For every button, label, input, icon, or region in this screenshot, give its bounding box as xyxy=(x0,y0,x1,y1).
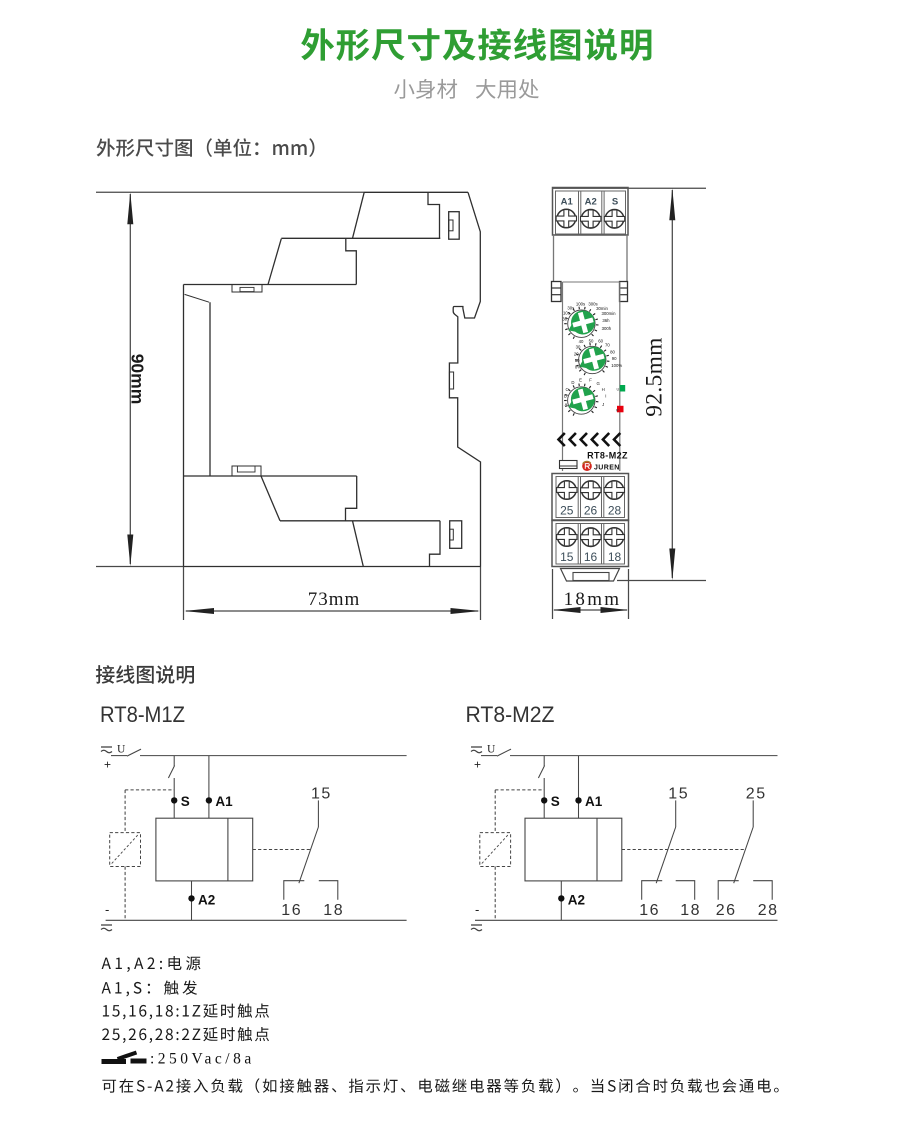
svg-text:50: 50 xyxy=(589,339,594,344)
svg-text:JUREN: JUREN xyxy=(594,464,620,471)
svg-text:C: C xyxy=(565,387,568,392)
svg-text:RT8-M1Z: RT8-M1Z xyxy=(100,702,185,727)
svg-text:A2: A2 xyxy=(585,197,597,208)
svg-text:15: 15 xyxy=(560,550,574,564)
svg-text:26: 26 xyxy=(716,902,737,919)
svg-text:10: 10 xyxy=(575,358,580,363)
svg-text:16: 16 xyxy=(639,902,660,919)
svg-text:300min: 300min xyxy=(601,311,616,316)
svg-text:92.5mm: 92.5mm xyxy=(642,337,668,416)
svg-text:70: 70 xyxy=(605,343,610,348)
svg-text:100%: 100% xyxy=(611,363,622,368)
svg-text:RT8-M2Z: RT8-M2Z xyxy=(587,451,628,461)
svg-text:-: - xyxy=(475,902,479,917)
svg-text:A2: A2 xyxy=(198,893,215,908)
svg-text:30: 30 xyxy=(576,345,581,350)
svg-text:90mm: 90mm xyxy=(128,354,148,405)
svg-text:73mm: 73mm xyxy=(308,589,361,610)
svg-text:S: S xyxy=(612,197,618,208)
svg-text:D: D xyxy=(571,380,574,385)
svg-text:U: U xyxy=(487,744,496,756)
svg-text:36h: 36h xyxy=(602,318,610,323)
svg-text:15: 15 xyxy=(311,786,332,803)
svg-text:3s: 3s xyxy=(562,317,567,322)
svg-text:20: 20 xyxy=(574,352,579,357)
svg-text:26: 26 xyxy=(584,504,598,518)
svg-text:A1: A1 xyxy=(585,794,603,809)
svg-text:40: 40 xyxy=(579,339,584,344)
svg-text:25: 25 xyxy=(746,786,767,803)
svg-text:0%: 0% xyxy=(575,365,581,370)
svg-text:18mm: 18mm xyxy=(564,589,622,610)
svg-text:10s: 10s xyxy=(563,311,570,316)
svg-text:S: S xyxy=(181,794,190,809)
svg-text:B: B xyxy=(564,394,567,399)
svg-text:A1: A1 xyxy=(215,794,233,809)
svg-text:80: 80 xyxy=(610,349,615,354)
svg-text:R: R xyxy=(616,409,619,413)
svg-text:E: E xyxy=(579,378,582,383)
svg-text:H: H xyxy=(602,387,605,392)
svg-text:60: 60 xyxy=(598,339,603,344)
svg-text:16: 16 xyxy=(584,550,598,564)
svg-text:18: 18 xyxy=(323,902,344,919)
svg-text:100s: 100s xyxy=(576,302,585,307)
svg-text:J: J xyxy=(602,402,604,407)
svg-text:25: 25 xyxy=(560,504,574,518)
svg-text:18: 18 xyxy=(680,902,701,919)
svg-text:A: A xyxy=(565,402,568,407)
svg-text:90: 90 xyxy=(612,356,617,361)
svg-text:300h: 300h xyxy=(602,326,612,331)
svg-text:16: 16 xyxy=(281,902,302,919)
svg-text:U: U xyxy=(117,744,126,756)
svg-text:U: U xyxy=(617,387,620,391)
svg-text:15: 15 xyxy=(668,786,689,803)
svg-text:A1: A1 xyxy=(561,197,574,208)
svg-text:28: 28 xyxy=(608,504,622,518)
svg-text:S: S xyxy=(551,794,560,809)
svg-text:+: + xyxy=(474,758,481,772)
svg-text:-: - xyxy=(105,902,109,917)
svg-text::250Vac/8a: :250Vac/8a xyxy=(150,1051,255,1068)
svg-text:A2: A2 xyxy=(568,893,585,908)
svg-text:I: I xyxy=(605,394,606,399)
svg-text:28: 28 xyxy=(758,902,779,919)
svg-text:+: + xyxy=(104,758,111,772)
svg-text:F: F xyxy=(589,378,592,383)
svg-text:G: G xyxy=(597,381,601,386)
svg-text:RT8-M2Z: RT8-M2Z xyxy=(466,702,555,727)
svg-text:18: 18 xyxy=(608,550,622,564)
